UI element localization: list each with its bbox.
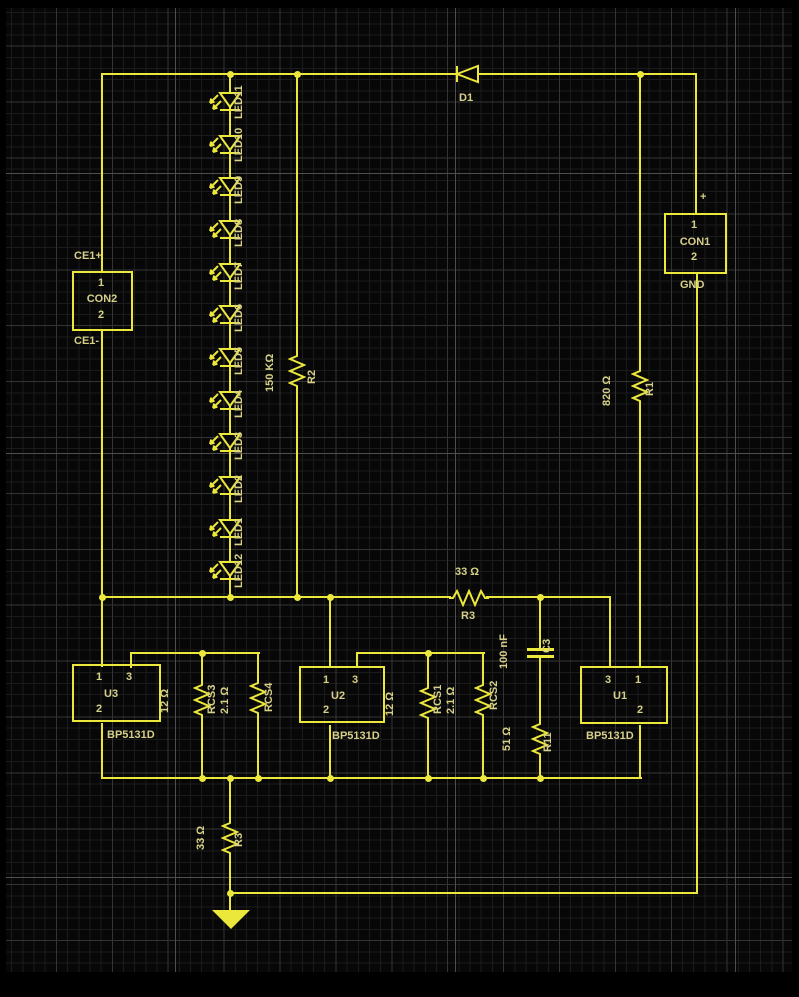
grid-accent-line — [0, 453, 799, 454]
wire-u3-pin2 — [101, 723, 103, 779]
wire-u1-pin2 — [639, 725, 641, 778]
u2-pin3-label: 3 — [352, 674, 358, 686]
wire-u1-pin3 — [609, 597, 611, 667]
resistor-r11-value: 51 Ω — [501, 727, 513, 751]
u1-pin1-label: 1 — [635, 674, 641, 686]
resistor-r11-refdes: R11 — [542, 732, 554, 752]
capacitor-c3-plate[interactable] — [527, 655, 554, 658]
resistor-rcs3-value: 12 Ω — [159, 689, 171, 713]
con2-ce1plus-label: CE1+ — [74, 250, 102, 262]
capacitor-c3-refdes: C3 — [541, 639, 553, 653]
junction-dot — [99, 594, 106, 601]
wire-r3-bottom-top — [229, 778, 231, 818]
led-label: LED1 — [233, 518, 245, 546]
junction-dot — [227, 594, 234, 601]
grid-accent-line — [735, 0, 736, 997]
u2-pin2-label: 2 — [323, 704, 329, 716]
wire-con2-pin2-u3 — [101, 331, 103, 667]
grid-accent-line — [455, 0, 456, 997]
con1-pin2-label: 2 — [691, 251, 697, 263]
led-label: LED7 — [233, 262, 245, 290]
wire-u2-pin2 — [329, 725, 331, 778]
con1-refdes: CON1 — [664, 236, 726, 248]
u3-pin1-label: 1 — [96, 671, 102, 683]
wire-rcs3-bottom — [201, 716, 203, 778]
u1-part-number: BP5131D — [586, 730, 634, 742]
junction-dot — [227, 71, 234, 78]
diode-d1-symbol[interactable] — [453, 64, 481, 84]
resistor-r3-mid-value: 33 Ω — [455, 566, 479, 578]
wire-r3-bottom-bottom — [229, 856, 231, 894]
junction-dot — [327, 775, 334, 782]
wire-top-rail-left — [102, 73, 457, 75]
u3-pin2-label: 2 — [96, 703, 102, 715]
junction-dot — [537, 594, 544, 601]
wire-r2-top — [296, 73, 298, 351]
junction-dot — [227, 775, 234, 782]
led-label: LED4 — [233, 390, 245, 418]
wire-rcs1-bottom — [427, 720, 429, 778]
resistor-rcs4-value: 2.1 Ω — [219, 687, 231, 714]
con1-plus-label: + — [700, 191, 706, 203]
wire-r1-top — [639, 73, 641, 366]
led-label: LED9 — [233, 176, 245, 204]
junction-dot — [199, 650, 206, 657]
u3-pin3-label: 3 — [126, 671, 132, 683]
u3-part-number: BP5131D — [107, 729, 155, 741]
schematic-canvas: LED11LED10LED9LED8LED7LED6LED5LED4LED3LE… — [0, 0, 799, 997]
wire-ground-rail — [230, 892, 698, 894]
junction-dot — [227, 890, 234, 897]
junction-dot — [327, 594, 334, 601]
wire-rcs4-bottom — [257, 715, 259, 778]
con2-pin1-label: 1 — [98, 277, 104, 289]
wire-top-rail-right — [478, 73, 697, 75]
grid-accent-line — [0, 877, 799, 878]
con1-gnd-label: GND — [680, 279, 704, 291]
led-label: LED11 — [233, 85, 245, 119]
resistor-r2-symbol[interactable] — [288, 351, 306, 391]
frame-bottom — [0, 972, 799, 997]
resistor-rcs2-refdes: RCS2 — [488, 681, 500, 710]
frame-right — [792, 0, 799, 997]
u1-refdes: U1 — [613, 690, 627, 702]
wire-rcs4-top — [257, 653, 259, 679]
wire-led-bus-right — [486, 596, 611, 598]
wire-bottom-rail — [102, 777, 642, 779]
led-label: LED10 — [233, 128, 245, 162]
con1-pin1-label: 1 — [691, 219, 697, 231]
junction-dot — [480, 775, 487, 782]
u1-pin3-label: 3 — [605, 674, 611, 686]
wire-con2-pin1 — [101, 73, 103, 272]
grid-accent-line — [175, 0, 176, 997]
resistor-r1-refdes: R1 — [644, 382, 656, 396]
u2-part-number: BP5131D — [332, 730, 380, 742]
wire-u2-pin1 — [329, 597, 331, 667]
grid-accent-line — [0, 173, 799, 174]
resistor-r3-bottom-value: 33 Ω — [195, 826, 207, 850]
frame-top — [0, 0, 799, 8]
junction-dot — [425, 650, 432, 657]
wire-r1-u1 — [639, 406, 641, 668]
u2-refdes: U2 — [331, 690, 345, 702]
led-label: LED6 — [233, 304, 245, 332]
resistor-r3-bottom-refdes: R3 — [233, 833, 245, 847]
wire-u3-cs-net — [130, 652, 260, 654]
junction-dot — [199, 775, 206, 782]
con2-ce1minus-label: CE1- — [74, 335, 99, 347]
diode-d1-refdes: D1 — [459, 92, 473, 104]
wire-con1-pin2-gnd — [696, 273, 698, 894]
led-label: LED12 — [233, 554, 245, 588]
wire-rcs2-top — [482, 653, 484, 681]
resistor-r3-mid-symbol[interactable] — [449, 589, 489, 607]
resistor-r1-value: 820 Ω — [601, 376, 613, 406]
junction-dot — [425, 775, 432, 782]
junction-dot — [537, 775, 544, 782]
resistor-r3-mid-refdes: R3 — [461, 610, 475, 622]
ground-symbol[interactable] — [212, 910, 250, 929]
resistor-rcs4-refdes: RCS4 — [263, 683, 275, 712]
wire-rcs1-top — [427, 653, 429, 684]
wire-rcs3-top — [201, 653, 203, 681]
resistor-rcs1-value: 12 Ω — [384, 692, 396, 716]
led-label: LED5 — [233, 347, 245, 375]
wire-u2-cs-net — [356, 652, 485, 654]
junction-dot — [255, 775, 262, 782]
resistor-rcs1-refdes: RCS1 — [432, 685, 444, 714]
capacitor-c3-value: 100 nF — [498, 634, 510, 669]
led-label: LED8 — [233, 219, 245, 247]
junction-dot — [294, 594, 301, 601]
frame-left — [0, 0, 6, 997]
wire-rcs2-bottom — [482, 717, 484, 778]
junction-dot — [637, 71, 644, 78]
wire-led-bus-left — [102, 596, 451, 598]
wire-r2-bottom — [296, 391, 298, 598]
resistor-rcs3-refdes: RCS3 — [206, 685, 218, 714]
resistor-rcs2-value: 2.1 Ω — [445, 687, 457, 714]
led-label: LED2 — [233, 475, 245, 503]
u3-refdes: U3 — [104, 688, 118, 700]
con2-pin2-label: 2 — [98, 309, 104, 321]
con2-refdes: CON2 — [72, 293, 132, 305]
u1-pin2-label: 2 — [637, 704, 643, 716]
wire-con1-pin1 — [695, 73, 697, 214]
resistor-r2-value: 150 KΩ — [264, 354, 276, 392]
resistor-r2-refdes: R2 — [306, 370, 318, 384]
led-label: LED3 — [233, 432, 245, 460]
wire-c3-r11 — [539, 658, 541, 720]
u2-pin1-label: 1 — [323, 674, 329, 686]
junction-dot — [294, 71, 301, 78]
